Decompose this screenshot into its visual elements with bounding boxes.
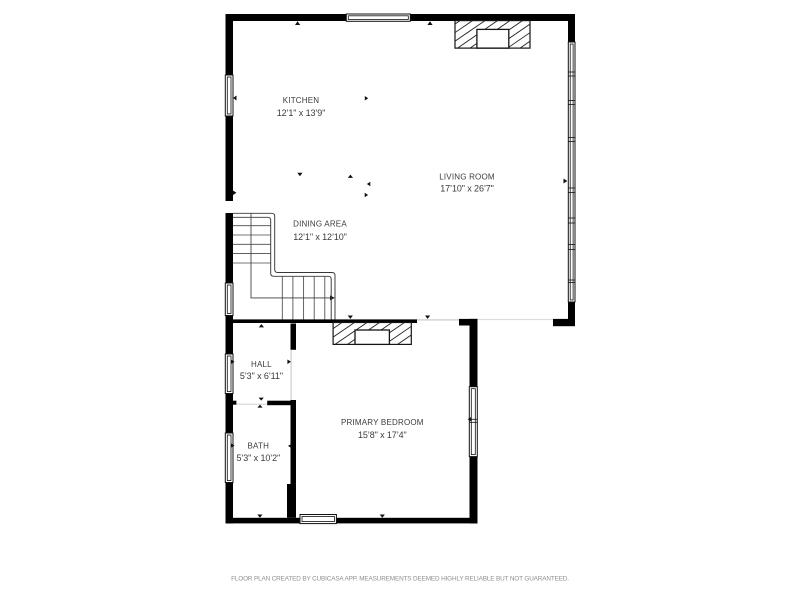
svg-text:BATH: BATH: [248, 442, 270, 451]
svg-text:12’1" x 12’10": 12’1" x 12’10": [293, 232, 347, 242]
svg-text:15’8" x 17’4": 15’8" x 17’4": [358, 430, 407, 440]
svg-text:5’3" x 6’11": 5’3" x 6’11": [240, 371, 283, 381]
svg-text:PRIMARY BEDROOM: PRIMARY BEDROOM: [341, 418, 424, 427]
svg-text:5’3" x 10’2": 5’3" x 10’2": [236, 453, 280, 463]
svg-text:FLOOR PLAN CREATED BY CUBICASA: FLOOR PLAN CREATED BY CUBICASA APP. MEAS…: [231, 575, 569, 582]
svg-text:17’10" x 26’7": 17’10" x 26’7": [440, 184, 494, 194]
svg-text:LIVING ROOM: LIVING ROOM: [439, 173, 495, 182]
svg-text:12’1" x 13’9": 12’1" x 13’9": [277, 108, 326, 118]
svg-text:KITCHEN: KITCHEN: [283, 96, 320, 105]
svg-text:HALL: HALL: [251, 360, 272, 369]
svg-text:DINING AREA: DINING AREA: [293, 220, 347, 229]
